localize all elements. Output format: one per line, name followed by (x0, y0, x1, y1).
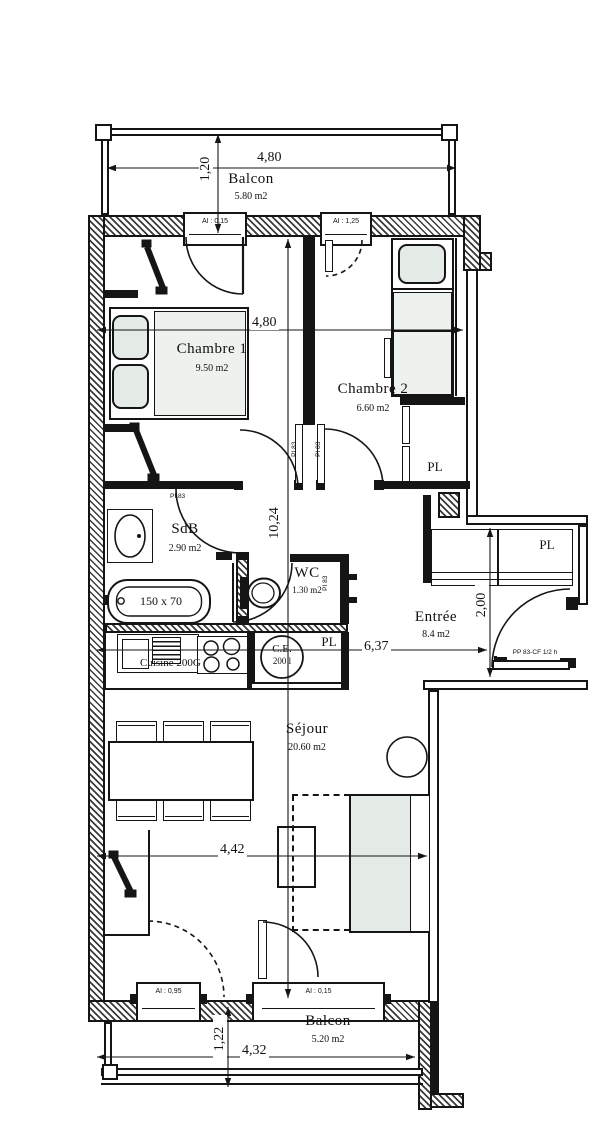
room-area-sdb: 2.90 m2 (150, 544, 220, 554)
room-label-wc: WC (284, 566, 330, 581)
wall-edge (432, 1003, 439, 1093)
balcony-right-rail (448, 128, 456, 215)
exterior-wall-top (88, 215, 481, 237)
dashed-line (292, 929, 350, 931)
chair (163, 721, 204, 742)
closet-divider (497, 529, 499, 586)
wc-right-wall (340, 554, 349, 624)
entrance-door-jamb (566, 597, 578, 610)
dim-sejour-width: 4,42 (218, 843, 247, 857)
exterior-wall-right-foot (479, 252, 492, 271)
bed-side-line (455, 238, 457, 396)
bathtub-label: 150 x 70 (125, 595, 197, 607)
balcony-bottom-rail (101, 1068, 423, 1076)
chair (116, 800, 157, 821)
washbasin-unit (107, 509, 153, 563)
door-label-chambre1: PI 83 (292, 435, 299, 463)
dim-interior-length: 10,24 (268, 496, 282, 550)
closet-label: PL (532, 538, 562, 551)
hinge-mark (349, 597, 357, 603)
kitchen-label: Cuisine 200G (140, 658, 201, 669)
exterior-wall-bottom-right-foot (430, 1093, 464, 1108)
dashed-line (292, 794, 350, 796)
pillow (112, 315, 149, 360)
wall-entree-right (578, 525, 588, 605)
chambre-divider-wall (303, 237, 315, 425)
door-leaf (325, 240, 333, 272)
entrance-door-leaf (492, 660, 570, 670)
mattress (393, 292, 452, 395)
dim-mid-width: 6,37 (362, 640, 391, 654)
dim-interior-width: 4,80 (250, 316, 279, 330)
dim-balcon-bottom-depth: 1,22 (213, 1015, 227, 1063)
water-heater-capacity: 200 l (266, 657, 298, 666)
tv-unit (277, 826, 316, 888)
room-label-balcon-bottom: Balcon (288, 1014, 368, 1029)
sofa-armrest (410, 796, 429, 931)
window-label: AI : 0,95 (155, 988, 181, 995)
door-label-chambre2: PI 83 (316, 435, 323, 463)
door-leaf (258, 920, 267, 979)
chair (163, 800, 204, 821)
window-bottom-left: AI : 0,95 (136, 982, 201, 1022)
hall-entree-wall (423, 495, 431, 583)
dim-entree-depth: 2,00 (475, 581, 489, 629)
pillow (398, 244, 446, 284)
bed-line (393, 330, 452, 332)
hinge-mark (349, 574, 357, 580)
window-label: AI : 1,25 (333, 218, 359, 225)
room-label-sdb: SdB (150, 522, 220, 537)
chair (210, 721, 251, 742)
door-jamb (374, 480, 384, 490)
dim-balcon-top-depth: 1,20 (199, 145, 213, 193)
floor-plan: AI : 0,15 AI : 1,25 AI : 0,95 AI : 0,15 (0, 0, 600, 1144)
corner-unit-line (148, 830, 150, 936)
stove (197, 636, 248, 674)
room-area-sejour: 20.60 m2 (272, 743, 342, 753)
dim-balcon-bottom-width: 4,32 (240, 1044, 269, 1058)
window-label: AI : 0,15 (305, 988, 331, 995)
balcony-left-rail (101, 128, 109, 215)
wall-entree-top (466, 515, 588, 525)
room-label-entree: Entrée (405, 610, 467, 625)
entrance-door-label: PP 83-CF 1/2 h (497, 650, 573, 657)
closet-shelf (431, 572, 573, 580)
room-area-entree: 8.4 m2 (405, 630, 467, 640)
dim-balcon-top-width: 4,80 (255, 151, 284, 165)
room-area-wc: 1.30 m2 (282, 586, 332, 595)
toilet (248, 579, 280, 608)
wall-stub (105, 290, 138, 298)
sdb-top-wall (105, 481, 240, 489)
partition-cap (236, 616, 249, 624)
pillow (112, 364, 149, 409)
balcony-post (95, 124, 112, 141)
balcony-bottom-rail-line (101, 1083, 423, 1085)
window-label: AI : 0,15 (202, 218, 228, 225)
room-area-balcon-bottom: 5.20 m2 (288, 1035, 368, 1045)
chair (210, 800, 251, 821)
toilet-tank (240, 577, 249, 609)
partition-cap (236, 552, 249, 560)
room-area-chambre1: 9.50 m2 (152, 364, 272, 374)
room-area-chambre2: 6.60 m2 (318, 404, 428, 414)
balcony-post (441, 124, 458, 141)
door-label-sdb: PI 83 (170, 494, 185, 501)
dashed-line (292, 795, 294, 932)
door-jamb (234, 481, 243, 490)
dining-table (108, 741, 254, 801)
balcony-post (102, 1064, 118, 1080)
room-label-chambre1: Chambre 1 (152, 342, 272, 357)
wall-entree-bottom (423, 680, 588, 690)
chambre2-bottom-wall (378, 481, 470, 489)
room-area-balcon-top: 5.80 m2 (196, 192, 306, 202)
corner-unit-line (105, 934, 150, 936)
bed-line (391, 288, 454, 290)
window-frame (384, 338, 391, 378)
room-label-chambre2: Chambre 2 (318, 382, 428, 397)
duct-shaft (438, 492, 460, 518)
room-label-sejour: Séjour (272, 722, 342, 737)
closet-door-frame (402, 446, 410, 482)
wall-stub (105, 424, 135, 432)
chair (116, 721, 157, 742)
balcony-top-rail (101, 128, 456, 136)
exterior-wall-left (88, 215, 105, 1022)
closet-label: PL (315, 635, 343, 648)
window-top-left: AI : 0,15 (183, 212, 247, 246)
closet-label: PL (420, 460, 450, 473)
side-table (387, 737, 427, 777)
counter-edge (105, 688, 348, 690)
tub-faucet-block (104, 595, 112, 605)
water-heater-label: C.E. (266, 644, 298, 655)
